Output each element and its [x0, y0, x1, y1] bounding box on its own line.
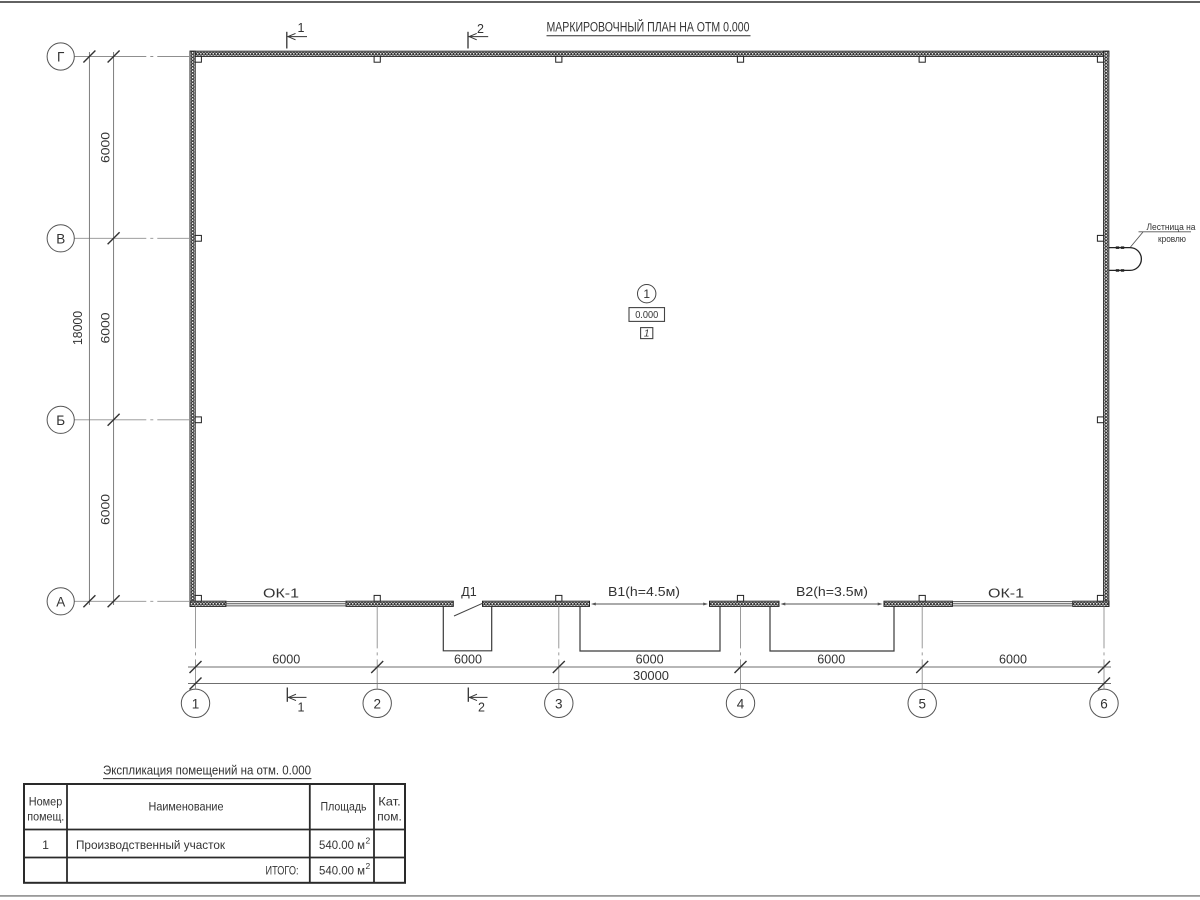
- svg-text:6000: 6000: [636, 652, 664, 667]
- svg-text:6000: 6000: [99, 312, 113, 343]
- svg-text:Лестница на: Лестница на: [1147, 222, 1197, 233]
- svg-text:ИТОГО:: ИТОГО:: [266, 864, 299, 878]
- svg-text:6000: 6000: [272, 652, 300, 667]
- svg-text:1: 1: [298, 21, 305, 35]
- svg-text:2: 2: [477, 22, 484, 36]
- svg-text:Номер: Номер: [29, 795, 63, 809]
- svg-text:540.00 м: 540.00 м: [319, 838, 365, 852]
- svg-text:1: 1: [644, 329, 650, 340]
- svg-text:2: 2: [478, 701, 485, 715]
- svg-text:Площадь: Площадь: [321, 800, 367, 814]
- svg-text:помещ.: помещ.: [27, 810, 64, 824]
- svg-text:6000: 6000: [999, 652, 1027, 667]
- svg-text:кровлю: кровлю: [1158, 234, 1186, 245]
- svg-text:Г: Г: [57, 50, 65, 65]
- svg-text:0.000: 0.000: [635, 309, 658, 321]
- svg-text:3: 3: [555, 696, 563, 711]
- svg-text:2: 2: [373, 696, 381, 711]
- svg-text:А: А: [56, 594, 65, 609]
- svg-text:Наименование: Наименование: [149, 800, 224, 814]
- svg-text:В1(h=4.5м): В1(h=4.5м): [608, 585, 680, 599]
- svg-text:В: В: [56, 231, 65, 246]
- svg-text:ОК-1: ОК-1: [263, 587, 299, 601]
- svg-text:В2(h=3.5м): В2(h=3.5м): [796, 585, 868, 599]
- svg-text:2: 2: [366, 861, 371, 871]
- svg-text:30000: 30000: [633, 668, 669, 683]
- svg-text:1: 1: [298, 701, 305, 715]
- svg-text:Производственный участок: Производственный участок: [76, 838, 226, 852]
- svg-text:6000: 6000: [817, 652, 845, 667]
- svg-text:5: 5: [918, 696, 926, 711]
- svg-text:6000: 6000: [454, 652, 482, 667]
- svg-text:18000: 18000: [70, 311, 85, 345]
- svg-text:МАРКИРОВОЧНЫЙ ПЛАН НА ОТМ 0.00: МАРКИРОВОЧНЫЙ ПЛАН НА ОТМ 0.000: [547, 18, 750, 36]
- svg-text:1: 1: [643, 287, 650, 301]
- svg-text:Кат.: Кат.: [378, 795, 401, 809]
- svg-text:пом.: пом.: [377, 810, 402, 824]
- svg-text:Д1: Д1: [461, 585, 476, 599]
- svg-text:2: 2: [366, 836, 371, 846]
- svg-text:1: 1: [192, 696, 200, 711]
- svg-text:Экспликация помещений на отм.: Экспликация помещений на отм. 0.000: [103, 764, 311, 778]
- svg-text:ОК-1: ОК-1: [988, 587, 1024, 601]
- svg-text:1: 1: [42, 838, 49, 852]
- svg-text:4: 4: [737, 696, 745, 711]
- svg-text:6000: 6000: [99, 132, 113, 163]
- svg-text:Б: Б: [56, 413, 65, 428]
- svg-text:6: 6: [1100, 696, 1108, 711]
- svg-text:6000: 6000: [99, 494, 113, 525]
- svg-text:540.00 м: 540.00 м: [319, 864, 365, 878]
